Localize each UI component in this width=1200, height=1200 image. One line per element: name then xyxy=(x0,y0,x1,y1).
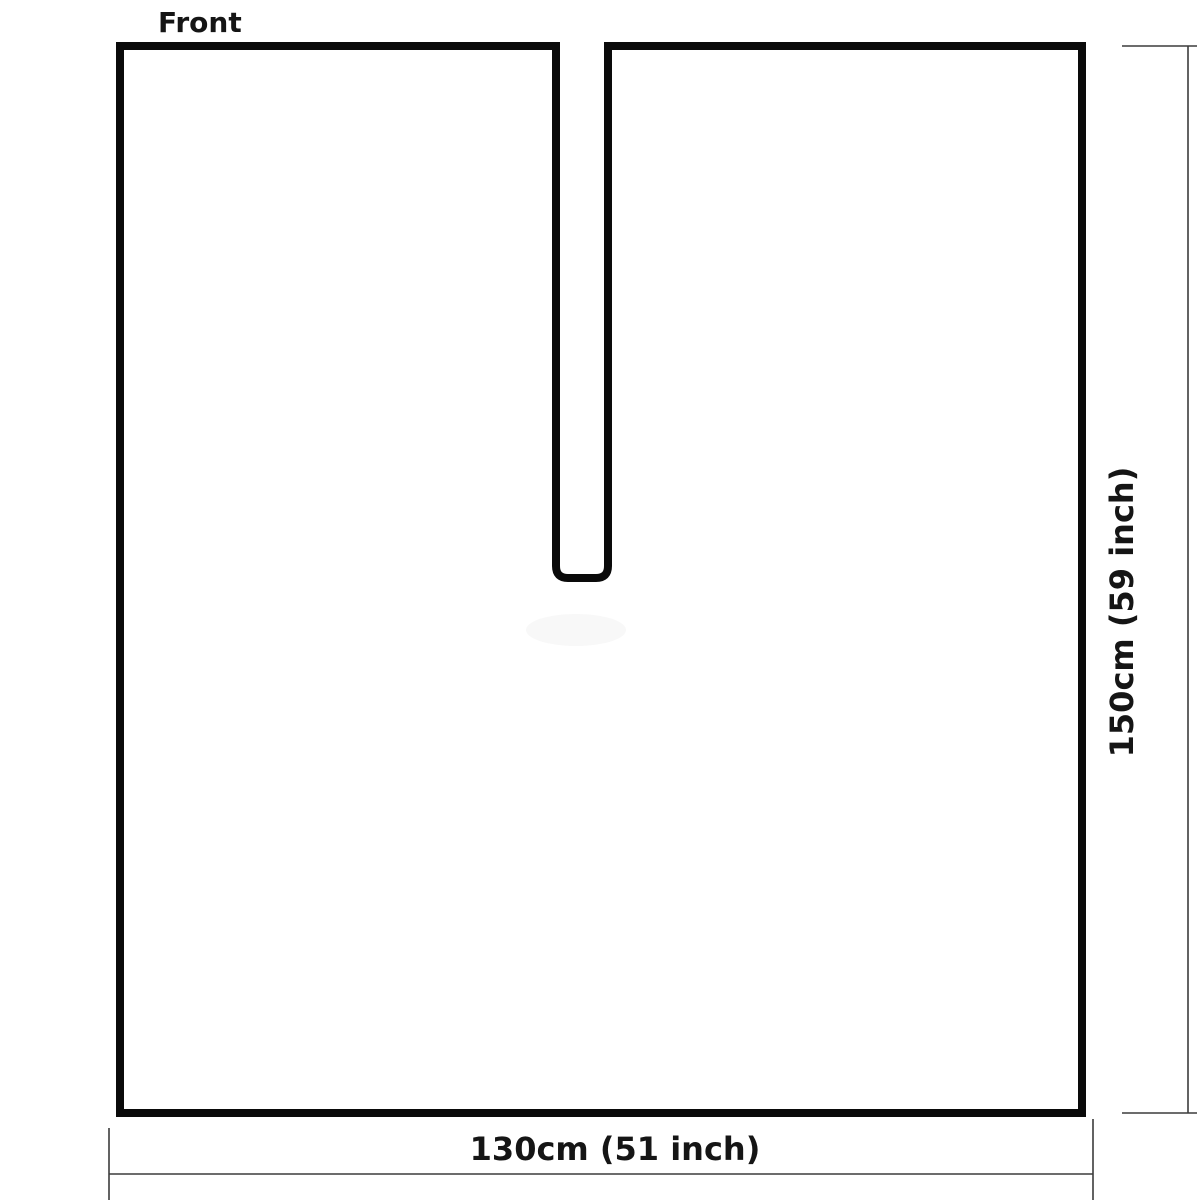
height-dimension-label: 150cm (59 inch) xyxy=(1103,467,1141,758)
piece-label: Front xyxy=(158,6,242,39)
width-dimension-label: 130cm (51 inch) xyxy=(470,1130,761,1168)
watermark-smudge xyxy=(526,614,626,646)
diagram-svg: 150cm (59 inch) 130cm (51 inch) Front xyxy=(0,0,1200,1200)
garment-outline xyxy=(120,46,1082,1113)
height-dimension: 150cm (59 inch) xyxy=(1103,46,1197,1113)
pattern-diagram: 150cm (59 inch) 130cm (51 inch) Front xyxy=(0,0,1200,1200)
width-dimension: 130cm (51 inch) xyxy=(109,1119,1093,1200)
